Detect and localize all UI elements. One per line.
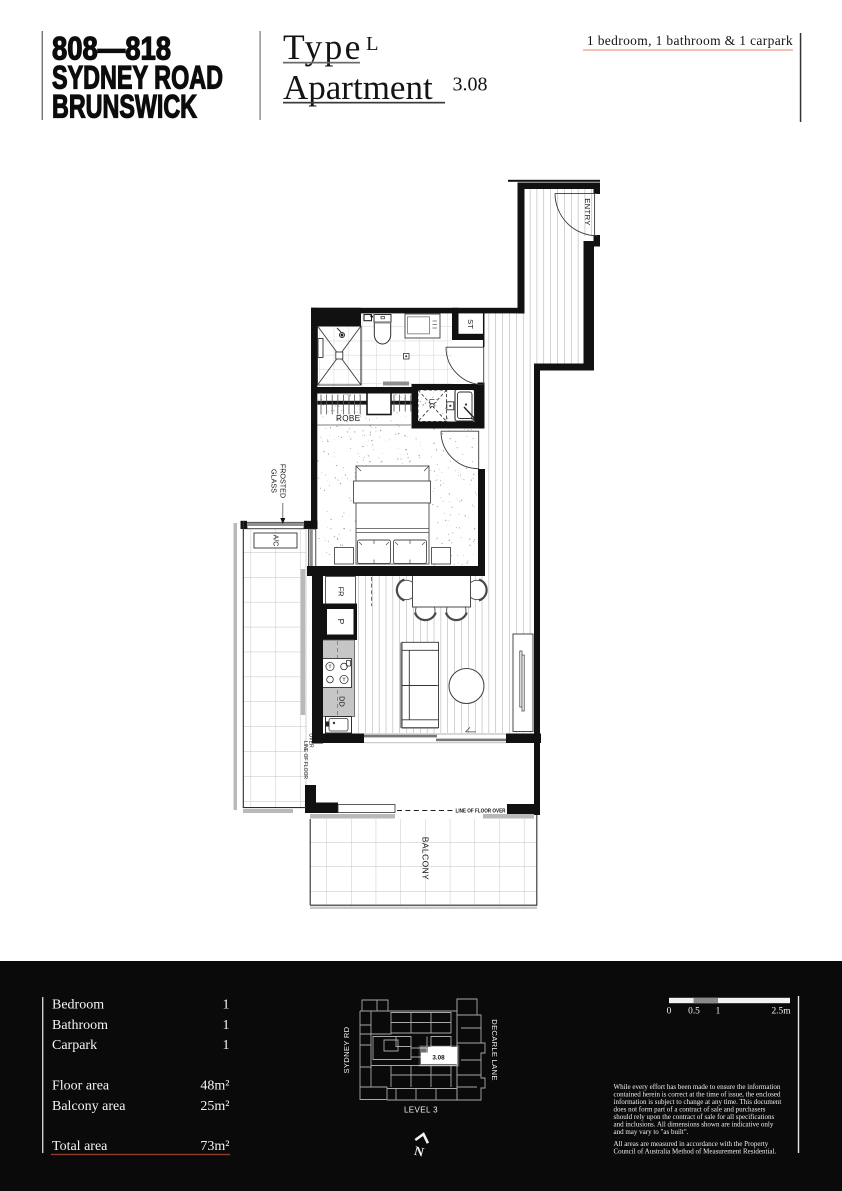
svg-text:A/C: A/C xyxy=(272,535,279,547)
svg-text:3.08: 3.08 xyxy=(432,1055,445,1062)
svg-text:BALCONY: BALCONY xyxy=(420,837,430,881)
svg-text:0: 0 xyxy=(667,1007,672,1017)
svg-text:FROSTED: FROSTED xyxy=(279,464,288,498)
svg-text:0.5: 0.5 xyxy=(688,1007,700,1017)
svg-text:SYDNEY RD: SYDNEY RD xyxy=(342,1026,351,1073)
svg-text:OVER: OVER xyxy=(308,733,314,748)
svg-text:1: 1 xyxy=(223,998,230,1013)
svg-text:Floor area: Floor area xyxy=(52,1079,110,1094)
svg-text:ENTRY: ENTRY xyxy=(583,198,592,226)
svg-text:BRUNSWICK: BRUNSWICK xyxy=(52,89,197,125)
svg-text:1 bedroom, 1 bathroom & 1 carp: 1 bedroom, 1 bathroom & 1 carpark xyxy=(587,33,793,48)
svg-text:P: P xyxy=(336,619,346,625)
svg-text:Council of Australia Method of: Council of Australia Method of Measureme… xyxy=(614,1148,777,1156)
svg-text:LC: LC xyxy=(428,399,437,409)
svg-text:DECARLE LANE: DECARLE LANE xyxy=(490,1019,499,1080)
svg-text:and may vary to "as built".: and may vary to "as built". xyxy=(614,1128,689,1136)
svg-text:DD: DD xyxy=(338,696,347,707)
svg-text:Bathroom: Bathroom xyxy=(52,1018,108,1033)
svg-text:Bedroom: Bedroom xyxy=(52,998,104,1013)
svg-text:GLASS: GLASS xyxy=(270,469,279,493)
svg-text:L: L xyxy=(366,33,379,55)
svg-text:3.08: 3.08 xyxy=(453,74,488,96)
svg-text:1: 1 xyxy=(223,1038,230,1053)
svg-text:1: 1 xyxy=(716,1007,721,1017)
svg-text:Type: Type xyxy=(283,27,363,67)
svg-text:LINE OF FLOOR OVER: LINE OF FLOOR OVER xyxy=(456,809,506,815)
svg-text:LEVEL 3: LEVEL 3 xyxy=(404,1106,438,1115)
svg-text:FR: FR xyxy=(337,587,346,597)
svg-text:2.5m: 2.5m xyxy=(771,1007,791,1017)
svg-text:Carpark: Carpark xyxy=(52,1038,97,1053)
svg-text:Apartment: Apartment xyxy=(283,68,433,107)
svg-text:ST: ST xyxy=(466,319,475,329)
svg-text:LINE OF FLOOR: LINE OF FLOOR xyxy=(302,741,308,779)
svg-text:25m²: 25m² xyxy=(200,1099,229,1114)
svg-text:Total area: Total area xyxy=(52,1139,108,1154)
svg-text:1: 1 xyxy=(223,1018,230,1033)
svg-text:48m²: 48m² xyxy=(200,1079,229,1094)
svg-text:73m²: 73m² xyxy=(200,1139,229,1154)
svg-text:ROBE: ROBE xyxy=(336,414,361,423)
svg-text:Balcony area: Balcony area xyxy=(52,1099,126,1114)
